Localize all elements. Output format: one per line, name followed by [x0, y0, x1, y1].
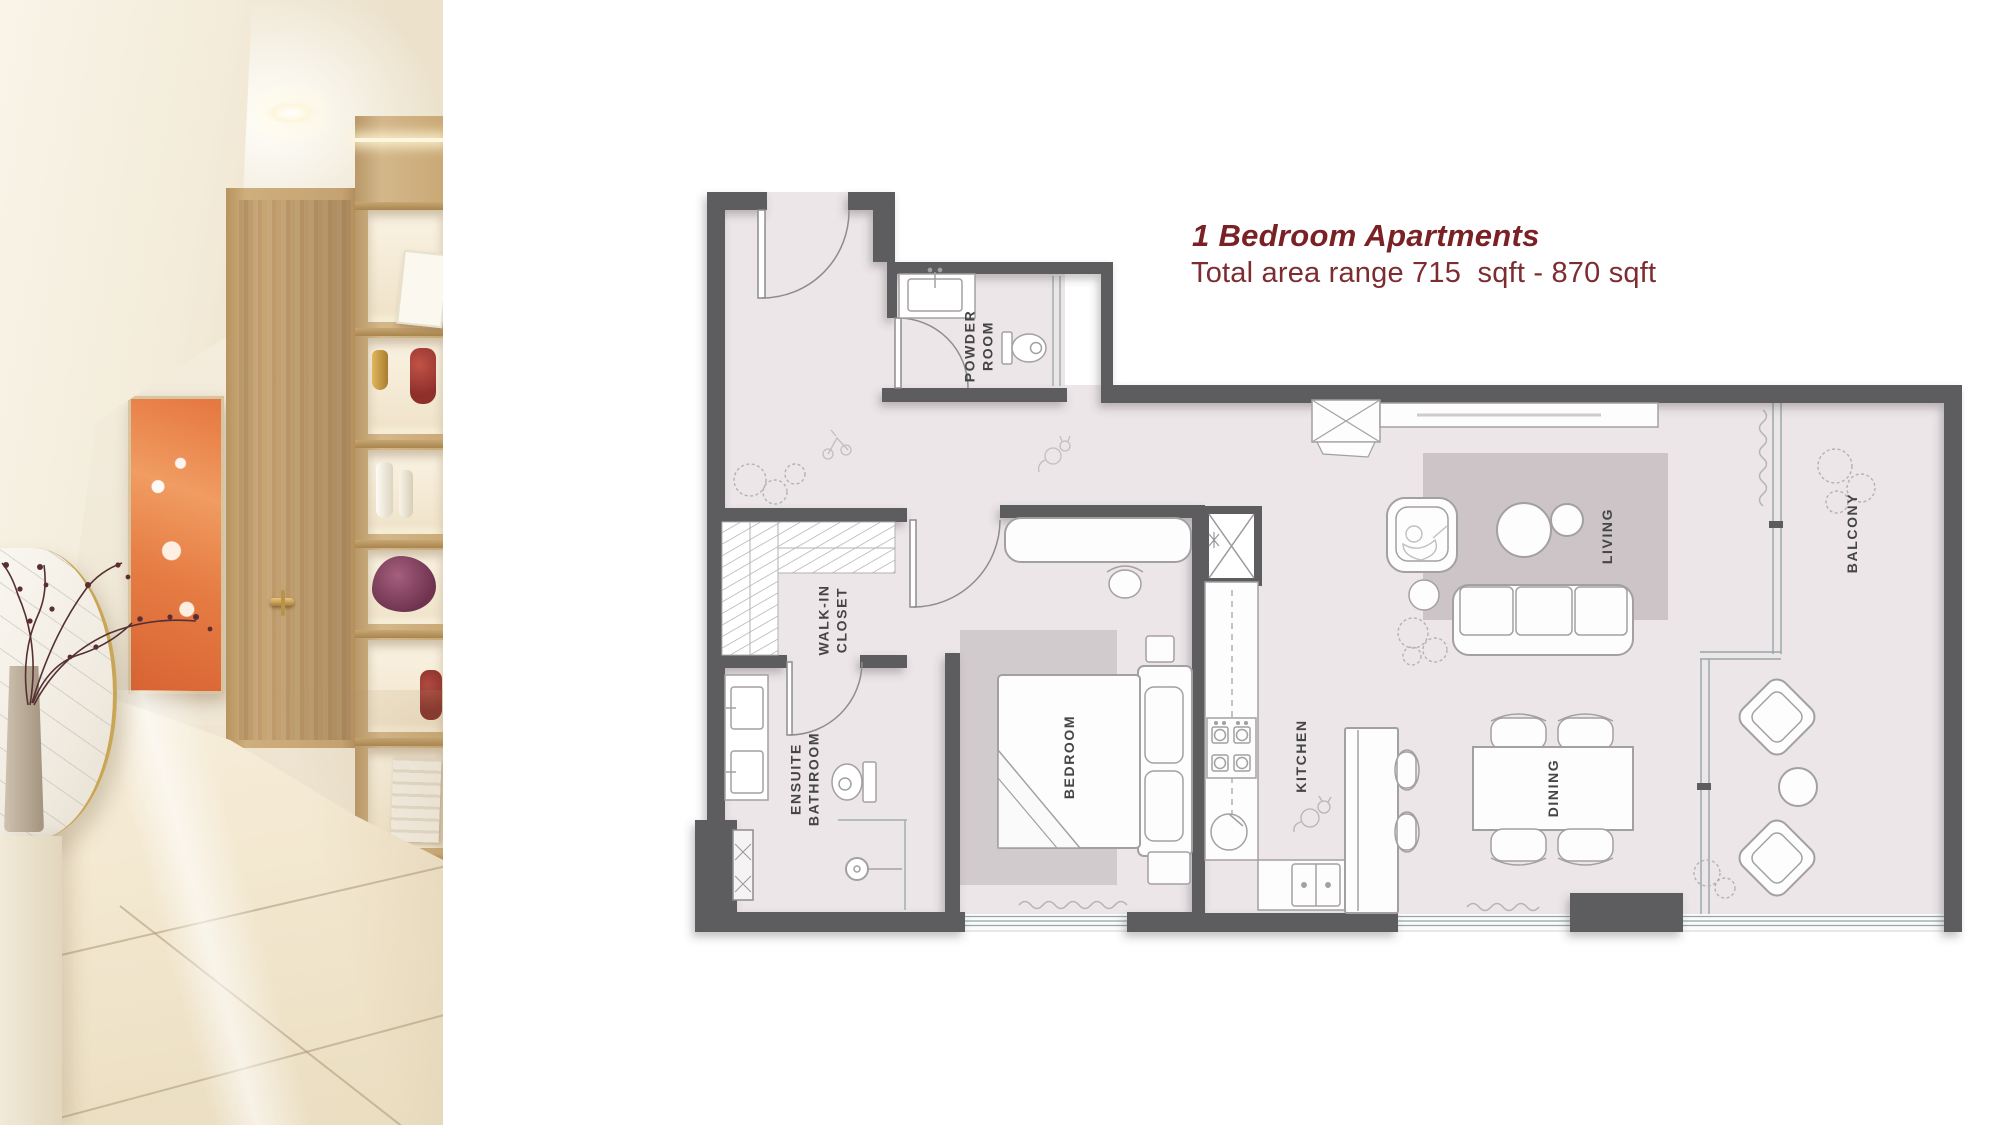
- label-kitchen: KITCHEN: [1292, 719, 1310, 792]
- ceiling-spotlight: [262, 100, 320, 126]
- console-table-base: [0, 836, 62, 1125]
- door-handle-plate: [281, 590, 285, 616]
- shelf-board: [355, 328, 443, 336]
- framed-print: [396, 250, 443, 328]
- shelf-board: [355, 440, 443, 448]
- shelf-board: [355, 738, 443, 746]
- label-walk-in-closet: WALK-IN CLOSET: [815, 584, 852, 655]
- dried-branches: [0, 505, 250, 720]
- red-vase: [410, 348, 436, 404]
- floorplan-drawing: [545, 138, 1965, 988]
- windows: [965, 914, 1944, 930]
- white-vase: [376, 462, 393, 518]
- label-powder-room: POWDER ROOM: [961, 310, 998, 383]
- shelf-board: [355, 630, 443, 638]
- label-balcony: BALCONY: [1843, 493, 1861, 573]
- service-shaft: [1205, 510, 1258, 582]
- shelf-led-strip: [355, 138, 443, 142]
- label-bedroom: BEDROOM: [1060, 715, 1078, 799]
- label-living: LIVING: [1598, 508, 1616, 564]
- gold-vase: [372, 350, 388, 390]
- white-vase-2: [399, 470, 413, 518]
- books-stack: [391, 757, 442, 843]
- label-dining: DINING: [1544, 759, 1562, 818]
- shelf-board: [355, 202, 443, 210]
- exterior-notch: [1065, 274, 1101, 385]
- wood-door: [239, 200, 351, 740]
- hallway-photo: [0, 0, 443, 1125]
- label-ensuite-bathroom: ENSUITE BATHROOM: [787, 732, 824, 826]
- red-vase-2: [420, 670, 442, 720]
- shelf-board: [355, 540, 443, 548]
